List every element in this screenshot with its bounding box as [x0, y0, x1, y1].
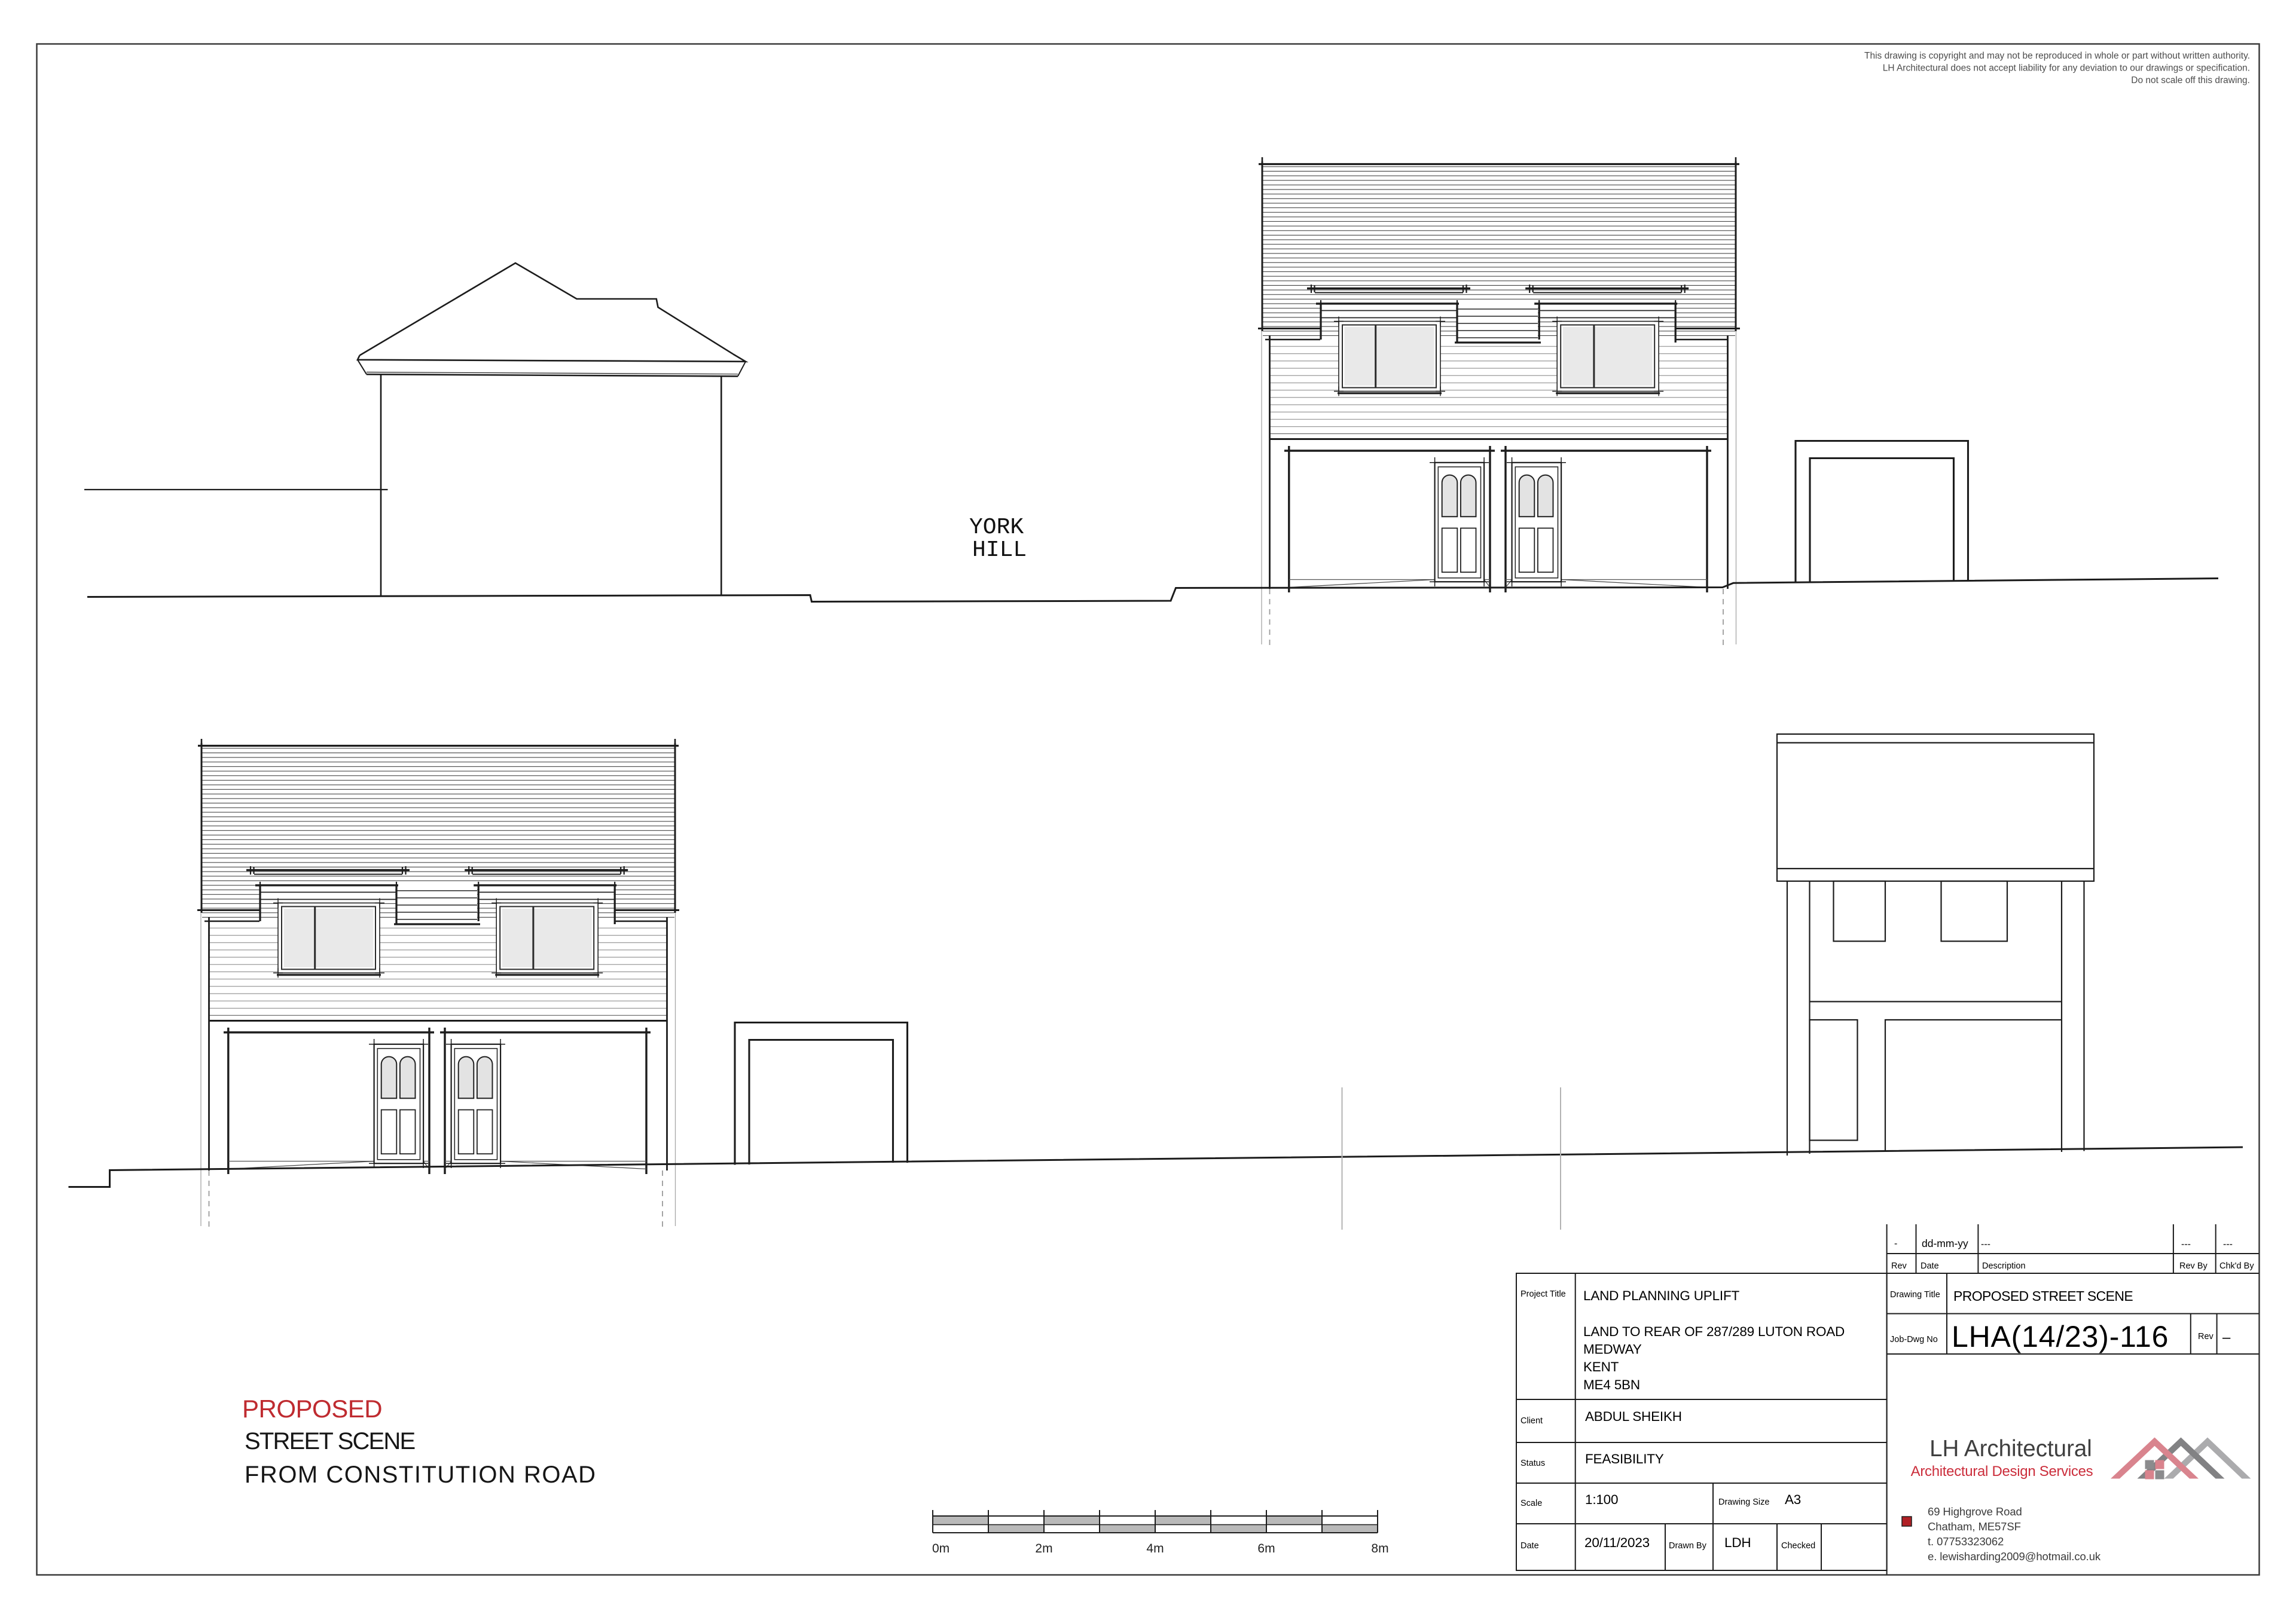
svg-text:LHA(14/23)-116: LHA(14/23)-116 — [1952, 1320, 2169, 1353]
svg-text:t. 07753323062: t. 07753323062 — [1928, 1535, 2004, 1548]
svg-text:Architectural Design Services: Architectural Design Services — [1911, 1463, 2093, 1480]
svg-text:69 Highgrove Road: 69 Highgrove Road — [1928, 1505, 2022, 1518]
svg-text:dd-mm-yy: dd-mm-yy — [1922, 1237, 1968, 1249]
svg-text:ME4 5BN: ME4 5BN — [1583, 1377, 1640, 1392]
svg-text:Chk'd By: Chk'd By — [2219, 1261, 2254, 1271]
svg-text:4m: 4m — [1146, 1542, 1164, 1555]
svg-text:Job-Dwg No: Job-Dwg No — [1890, 1335, 1938, 1344]
svg-text:–: – — [2222, 1329, 2231, 1346]
svg-text:0m: 0m — [932, 1542, 949, 1555]
svg-text:LDH: LDH — [1724, 1535, 1751, 1550]
svg-text:Chatham, ME57SF: Chatham, ME57SF — [1928, 1520, 2021, 1533]
svg-text:-: - — [1894, 1239, 1897, 1249]
svg-text:PROPOSED: PROPOSED — [242, 1395, 382, 1423]
svg-text:Client: Client — [1521, 1416, 1543, 1426]
svg-text:This drawing is copyright and: This drawing is copyright and may not be… — [1864, 51, 2250, 61]
svg-text:KENT: KENT — [1583, 1359, 1619, 1374]
svg-text:LAND PLANNING UPLIFT: LAND PLANNING UPLIFT — [1583, 1288, 1740, 1303]
svg-text:2m: 2m — [1035, 1542, 1052, 1555]
svg-text:HILL: HILL — [972, 537, 1027, 563]
svg-text:Rev By: Rev By — [2179, 1261, 2208, 1271]
svg-text:ABDUL SHEIKH: ABDUL SHEIKH — [1585, 1409, 1682, 1424]
svg-text:1:100: 1:100 — [1585, 1492, 1618, 1507]
svg-text:8m: 8m — [1371, 1542, 1388, 1555]
svg-text:FEASIBILITY: FEASIBILITY — [1585, 1451, 1664, 1466]
svg-text:---: --- — [2223, 1239, 2233, 1249]
svg-text:MEDWAY: MEDWAY — [1583, 1342, 1642, 1357]
svg-text:Rev: Rev — [2198, 1332, 2214, 1341]
svg-text:Rev: Rev — [1891, 1261, 1907, 1271]
svg-text:Description: Description — [1982, 1261, 2026, 1271]
svg-text:LH Architectural: LH Architectural — [1929, 1436, 2092, 1462]
svg-text:6m: 6m — [1257, 1542, 1275, 1555]
svg-text:LH Architectural does not acce: LH Architectural does not accept liabili… — [1883, 63, 2250, 74]
svg-text:STREET SCENE: STREET SCENE — [245, 1428, 415, 1454]
svg-text:---: --- — [1981, 1239, 1990, 1249]
svg-text:Drawing Title: Drawing Title — [1890, 1290, 1940, 1300]
svg-text:Project Title: Project Title — [1521, 1289, 1566, 1299]
svg-text:LAND TO REAR OF 287/289 LUTON: LAND TO REAR OF 287/289 LUTON ROAD — [1583, 1324, 1845, 1339]
svg-text:FROM CONSTITUTION ROAD: FROM CONSTITUTION ROAD — [245, 1462, 597, 1488]
svg-text:---: --- — [2181, 1239, 2191, 1249]
svg-text:A3: A3 — [1785, 1492, 1801, 1507]
svg-text:20/11/2023: 20/11/2023 — [1584, 1535, 1650, 1550]
svg-text:Date: Date — [1521, 1541, 1539, 1551]
svg-text:Drawn By: Drawn By — [1669, 1541, 1707, 1551]
svg-text:Status: Status — [1521, 1459, 1545, 1468]
svg-text:Scale: Scale — [1521, 1499, 1542, 1508]
svg-text:YORK: YORK — [969, 515, 1024, 540]
svg-text:e. lewisharding2009@hotmail.co: e. lewisharding2009@hotmail.co.uk — [1928, 1550, 2101, 1563]
svg-text:Checked: Checked — [1781, 1541, 1815, 1551]
svg-text:PROPOSED STREET SCENE: PROPOSED STREET SCENE — [1953, 1288, 2133, 1304]
svg-text:Do not scale off this drawing.: Do not scale off this drawing. — [2131, 75, 2250, 85]
svg-text:Date: Date — [1921, 1261, 1939, 1271]
svg-text:Drawing Size: Drawing Size — [1718, 1497, 1769, 1507]
